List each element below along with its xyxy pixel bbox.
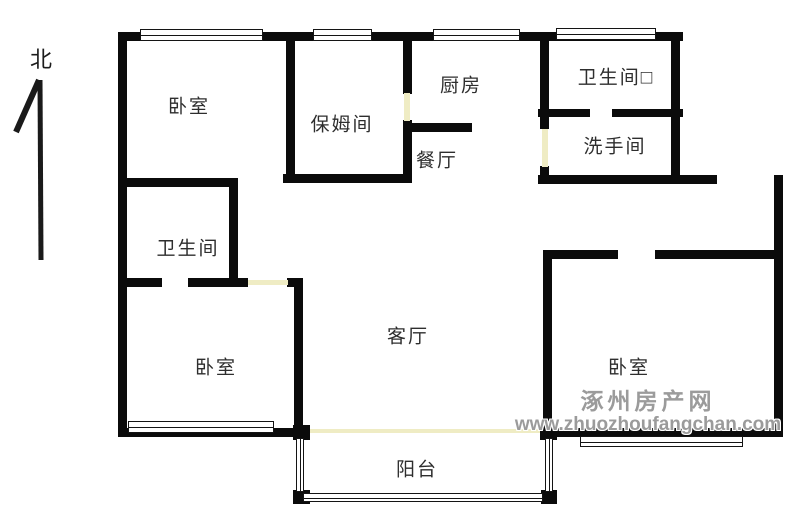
watermark-site-url: www.zhuozhoufangchan.com — [488, 414, 800, 436]
watermark-site-name: 涿州房产网 — [488, 382, 800, 416]
kitchen-label: 厨房 — [440, 71, 482, 98]
window-pane-line — [581, 442, 742, 443]
kitchen-window — [433, 29, 520, 41]
washroom-label: 洗手间 — [583, 132, 646, 159]
bedroom-sw-window — [128, 421, 274, 433]
bedroom-se-label: 卧室 — [608, 353, 650, 380]
floor-plan: 北 卧室保姆间厨房卫生间□洗手间餐厅卫生间卧室客厅卧室阳台 涿州房产网 www.… — [0, 0, 800, 524]
balcony-window-right — [545, 438, 553, 492]
window-pane-line — [557, 34, 655, 35]
bathroom-w-right-wall — [229, 183, 238, 287]
bathroom-w-label: 卫生间 — [156, 234, 219, 261]
nanny-kitchen-wall-upper — [403, 32, 412, 94]
window-pane-line — [314, 35, 371, 36]
bathroom-ne-right-wall — [671, 32, 680, 179]
kitchen-dining-divider — [403, 123, 472, 132]
window-pane-line — [434, 35, 519, 36]
balcony-window-left — [296, 438, 304, 492]
washroom-bottom-wall — [538, 175, 717, 184]
bedroom-sw-door — [248, 280, 288, 285]
bedroom-se-top-wall-left — [543, 250, 618, 259]
bedroom-nw-right-wall — [286, 32, 295, 183]
north-arrow-icon — [8, 70, 52, 270]
window-pane-line — [141, 35, 262, 36]
bedroom-se-top-wall-right — [655, 250, 781, 259]
bathroom-w-bottom-right — [188, 278, 248, 287]
window-pane-line — [304, 498, 542, 499]
balcony-window-front — [303, 493, 543, 502]
bedroom-sw-label: 卧室 — [195, 353, 237, 380]
balcony-label: 阳台 — [396, 455, 438, 482]
balcony-post-bottom-right — [541, 490, 557, 504]
living-room-label: 客厅 — [387, 322, 429, 349]
washroom-door — [542, 129, 548, 167]
window-pane-line — [300, 439, 301, 491]
nanny-kitchen-door — [404, 93, 410, 121]
outer-left-wall — [118, 32, 127, 437]
bathroom-w-bottom-left — [120, 278, 162, 287]
dining-room-label: 餐厅 — [416, 146, 458, 173]
nanny-room-window — [313, 29, 372, 41]
living-room-left-wall — [294, 278, 303, 437]
nanny-bottom-wall — [283, 174, 412, 183]
bath-wash-divider-right — [612, 109, 683, 117]
bedroom-se-window — [580, 436, 743, 447]
bath-wash-divider-left — [538, 109, 590, 117]
bedroom-nw-bottom-wall — [120, 178, 238, 187]
bedroom-nw-window — [140, 29, 263, 41]
window-pane-line — [129, 427, 273, 428]
nanny-room-label: 保姆间 — [310, 110, 373, 137]
bathroom-ne-label: 卫生间□ — [578, 63, 654, 90]
watermark: 涿州房产网 www.zhuozhoufangchan.com — [488, 382, 800, 436]
bedroom-nw-label: 卧室 — [168, 92, 210, 119]
bathroom-ne-window — [556, 28, 656, 40]
window-pane-line — [549, 439, 550, 491]
